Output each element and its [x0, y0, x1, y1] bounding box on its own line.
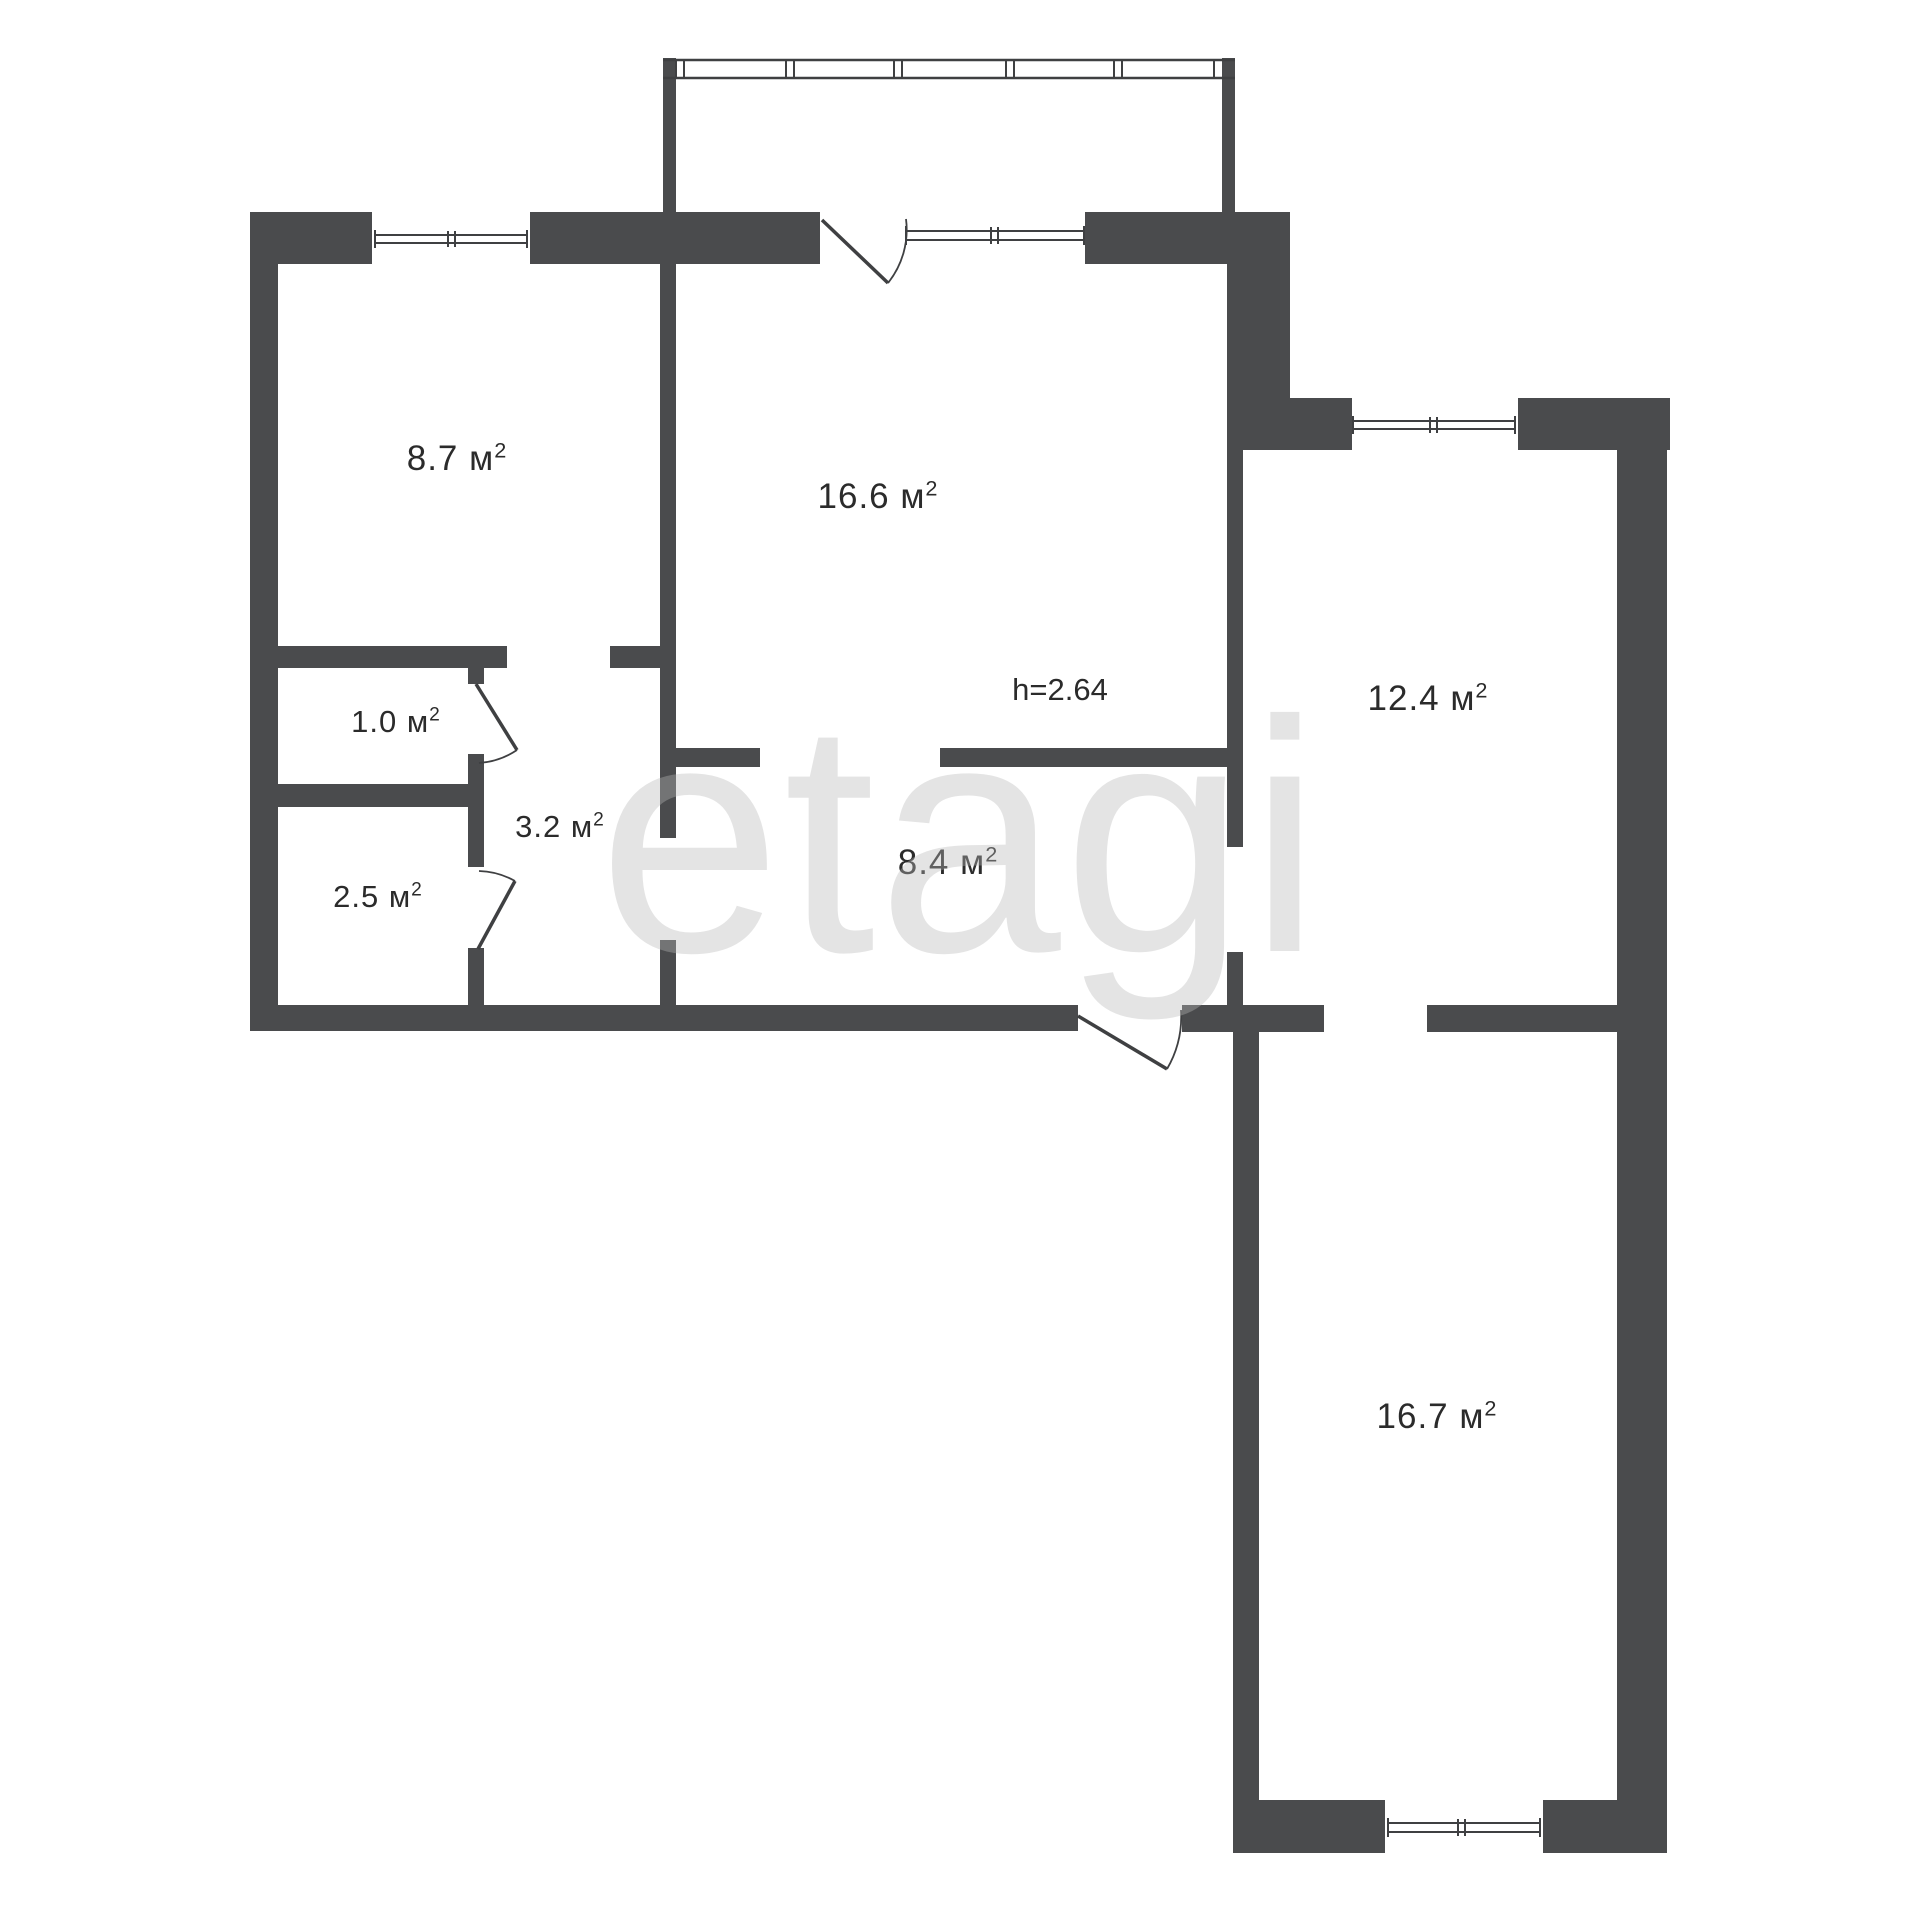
wall-stub-2-5-right-top — [468, 807, 484, 867]
wall-16-6-bottom-right — [940, 748, 1227, 767]
wall-div-8-7-16-6 — [660, 264, 676, 678]
room-area-unit: м — [900, 477, 925, 516]
wall-stub-1-0-right-top — [468, 668, 484, 684]
wall-balcony-left — [663, 58, 676, 212]
room-area-sup: 2 — [1475, 677, 1488, 702]
room-area-value: 2.5 — [333, 879, 379, 914]
door-balcony — [822, 219, 907, 283]
room-label-3-2: 3.2 м2 — [515, 809, 605, 845]
door-entrance — [1078, 1010, 1181, 1069]
room-area-unit: м — [407, 704, 429, 739]
balcony-railing — [663, 60, 1235, 78]
room-label-1-0: 1.0 м2 — [351, 704, 441, 740]
room-area-sup: 2 — [411, 880, 423, 901]
wall-bottom-left-a — [250, 1005, 1078, 1031]
room-area-value: 3.2 — [515, 809, 561, 844]
room-area-value: 16.7 — [1377, 1397, 1449, 1436]
room-label-12-4: 12.4 м2 — [1368, 679, 1489, 719]
room-label-8-7: 8.7 м2 — [407, 439, 508, 479]
wall-16-7-left — [1233, 1031, 1259, 1853]
room-area-sup: 2 — [1484, 1395, 1497, 1420]
wall-top-left-of-window — [250, 212, 372, 264]
room-area-unit: м — [1450, 679, 1475, 718]
wall-div-16-6-12-4 — [1227, 450, 1243, 847]
window-8-7 — [374, 230, 528, 248]
wall-1-0-top — [250, 646, 507, 668]
floor-plan-canvas: 8.7 м2 16.6 м2 h=2.64 12.4 м2 1.0 м2 3.2… — [0, 0, 1920, 1920]
door-1-0 — [476, 684, 517, 763]
room-area-sup: 2 — [494, 437, 507, 462]
window-12-4 — [1352, 416, 1516, 434]
room-area-unit: м — [1459, 1397, 1484, 1436]
window-balcony — [905, 226, 1085, 245]
wall-stub-2-5-right-bottom — [468, 948, 484, 1006]
room-area-sup: 2 — [985, 841, 998, 866]
wall-div-3-2-8-4-lower — [660, 940, 676, 1006]
wall-right-outer — [1617, 450, 1667, 1853]
wall-12-4-top-left — [1227, 398, 1352, 450]
room-area-value: 8.4 — [898, 843, 950, 882]
wall-12-4-top-right — [1518, 398, 1670, 450]
door-2-5 — [478, 871, 515, 949]
wall-16-7-bottom-right — [1543, 1800, 1667, 1853]
room-label-8-4: 8.4 м2 — [898, 843, 999, 883]
room-area-value: 16.6 — [818, 477, 890, 516]
room-area-sup: 2 — [429, 705, 441, 726]
room-area-unit: м — [469, 439, 494, 478]
wall-bottom-left-b — [1182, 1005, 1324, 1032]
wall-16-6-right-thick — [1227, 264, 1290, 398]
room-area-unit: м — [960, 843, 985, 882]
room-area-value: 1.0 — [351, 704, 397, 739]
room-area-unit: м — [571, 809, 593, 844]
window-16-7 — [1387, 1818, 1541, 1837]
wall-balcony-right — [1222, 58, 1235, 212]
room-area-unit: м — [389, 879, 411, 914]
watermark: etagi — [598, 672, 1324, 1002]
wall-stub-8-7-doorway — [610, 646, 660, 668]
room-label-16-7: 16.7 м2 — [1377, 1397, 1498, 1437]
room-label-2-5: 2.5 м2 — [333, 879, 423, 915]
wall-16-6-bottom-left — [673, 748, 760, 767]
room-area-sup: 2 — [925, 475, 938, 500]
room-area-value: 8.7 — [407, 439, 459, 478]
wall-16-7-bottom-left — [1233, 1800, 1385, 1853]
wall-stub-12-4-doorway — [1227, 952, 1243, 1007]
wall-div-1-0-2-5 — [250, 784, 484, 807]
wall-left-outer — [250, 212, 278, 1031]
wall-top-right-of-balcony — [1085, 212, 1290, 264]
wall-stub-1-0-right-bottom — [468, 754, 484, 784]
wall-bottom-left-c — [1427, 1005, 1617, 1032]
room-area-value: 12.4 — [1368, 679, 1440, 718]
ceiling-height-label: h=2.64 — [1012, 672, 1108, 708]
wall-top-mid — [530, 212, 820, 264]
room-area-sup: 2 — [593, 810, 605, 831]
room-label-16-6: 16.6 м2 — [818, 477, 939, 517]
